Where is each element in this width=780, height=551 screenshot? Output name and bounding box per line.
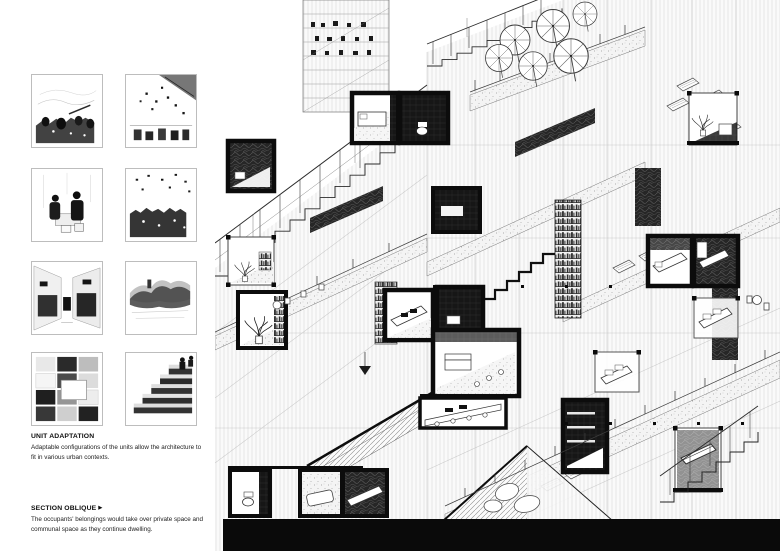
unit-bath-bottom — [300, 470, 342, 516]
unit-bed-mid — [648, 236, 692, 286]
unit-adaptation-section: UNIT ADAPTATION Adaptable configurations… — [31, 433, 205, 463]
unit-bedroom — [352, 93, 398, 143]
unit-adaptation-heading: UNIT ADAPTATION — [31, 433, 205, 440]
section-oblique-heading: SECTION OBLIQUE ▶ — [31, 505, 205, 512]
alley-shophouses-sketch-icon — [32, 262, 102, 334]
context-photo-4 — [125, 168, 197, 242]
context-photo-3 — [31, 168, 103, 242]
context-photo-2 — [125, 74, 197, 148]
photo-collage-wall-sketch-icon — [32, 353, 102, 425]
hillside-rooftops-sketch-icon — [126, 262, 196, 334]
section-oblique-drawing — [215, 0, 780, 551]
street-market-crowd-sketch-icon — [32, 75, 102, 147]
context-photo-6 — [125, 261, 197, 335]
unit-plant-frame — [687, 91, 739, 145]
unit-corner-dot-left — [226, 235, 276, 287]
section-oblique-section: SECTION OBLIQUE ▶ The occupants' belongi… — [31, 505, 205, 535]
unit-bed-right — [593, 350, 641, 392]
section-oblique-svg — [215, 0, 780, 551]
unit-bathroom-dark — [400, 93, 448, 143]
unit-dark-storage — [433, 188, 480, 232]
ground-band — [223, 519, 780, 551]
crowded-plaza-sketch-icon — [126, 169, 196, 241]
market-vendors-sketch-icon — [32, 169, 102, 241]
unit-veg-kitchen — [694, 236, 738, 286]
unit-bed-bottom — [343, 470, 387, 516]
unit-toilet-bottom — [230, 470, 270, 516]
context-photo-8 — [125, 352, 197, 426]
context-photo-1 — [31, 74, 103, 148]
play-arrow-icon: ▶ — [98, 505, 102, 511]
unit-kitchen-bar — [420, 398, 506, 428]
occupied-stair-terraces-sketch-icon — [126, 353, 196, 425]
unit-plant-room — [238, 292, 286, 348]
context-photo-5 — [31, 261, 103, 335]
unit-vegetation-box — [228, 141, 274, 191]
context-photo-7 — [31, 352, 103, 426]
presentation-board: UNIT ADAPTATION Adaptable configurations… — [0, 0, 780, 551]
unit-living-room — [433, 330, 519, 396]
unit-adaptation-body: Adaptable configurations of the units al… — [31, 443, 205, 463]
section-oblique-body: The occupants' belongings would take ove… — [31, 515, 205, 535]
unit-kitchen — [385, 290, 433, 340]
unit-bed-corner-dot — [692, 296, 740, 338]
canopy-street-festival-sketch-icon — [126, 75, 196, 147]
